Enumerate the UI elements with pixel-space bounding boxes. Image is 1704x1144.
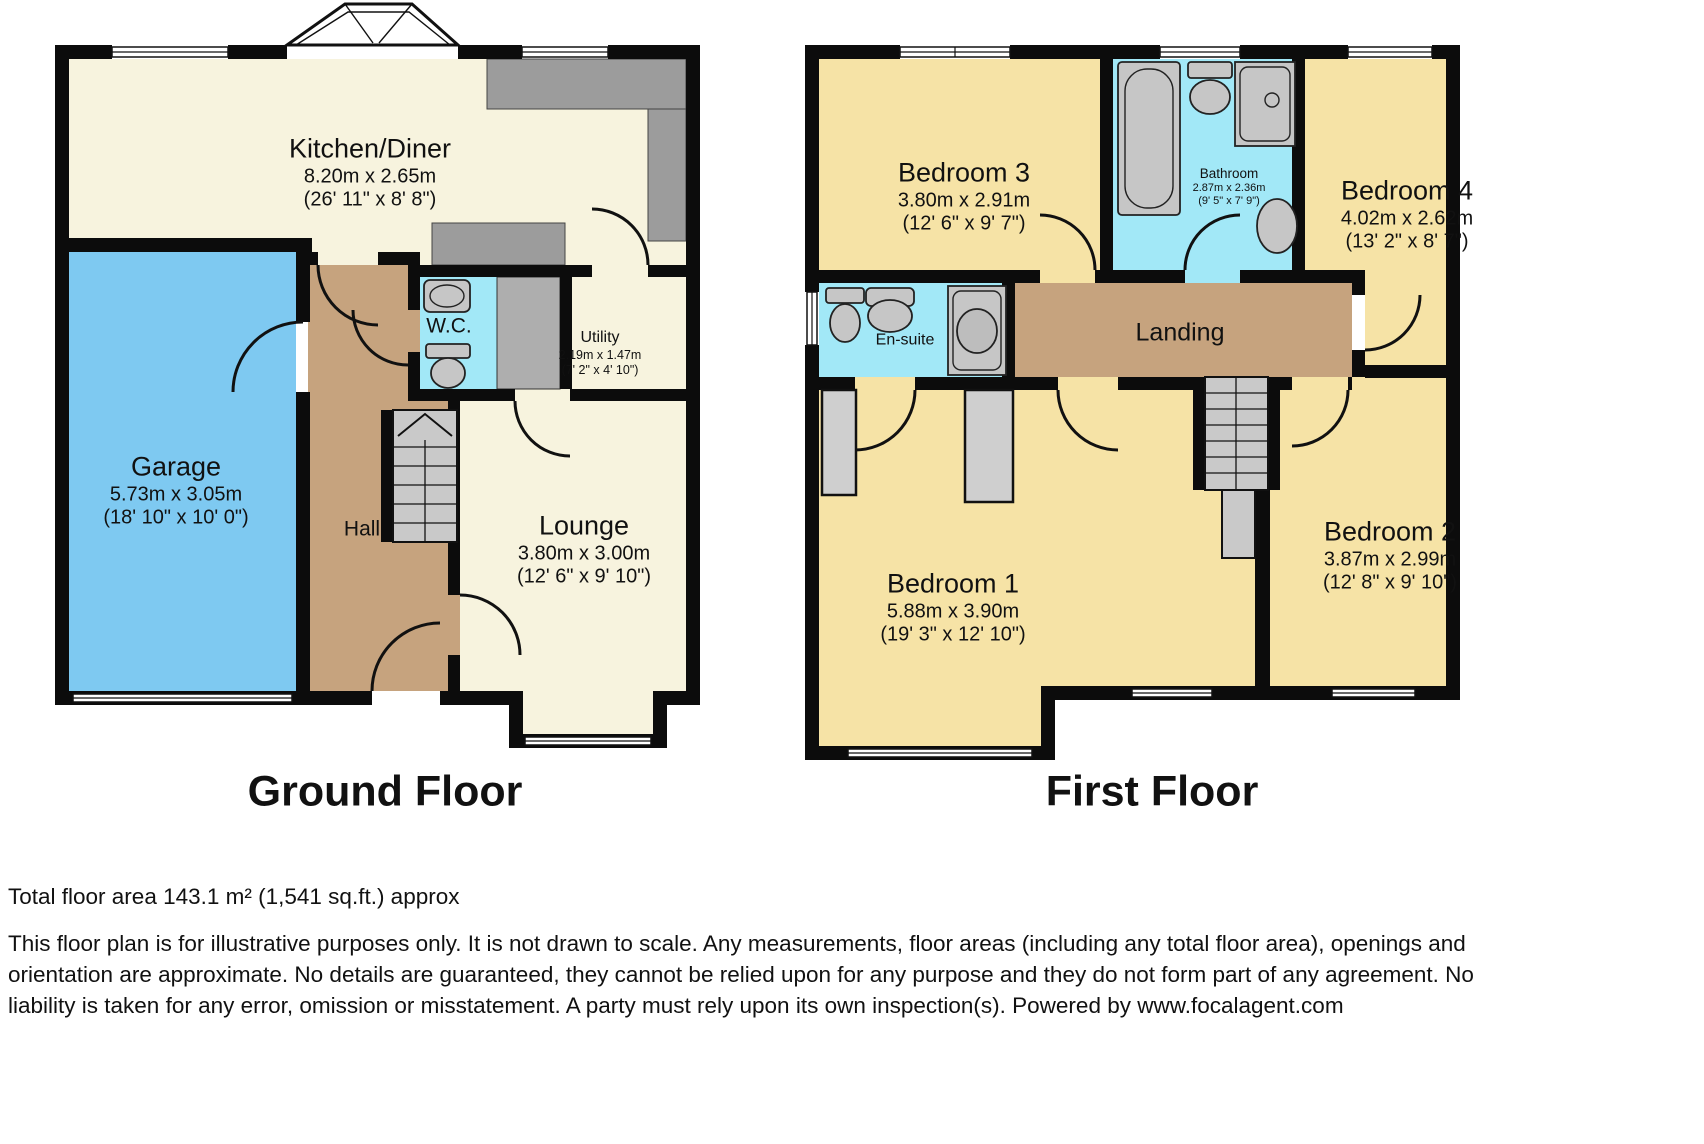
- room-dims-metric: 3.80m x 2.91m: [898, 189, 1030, 213]
- room-dims-imperial: (18' 10" x 10' 0"): [103, 507, 248, 531]
- wc-sink-icon: [424, 280, 470, 312]
- room-dims-metric: 4.02m x 2.62m: [1341, 207, 1473, 231]
- room-dims-imperial: (26' 11" x 8' 8"): [289, 189, 451, 213]
- room-dims-metric: 5.73m x 3.05m: [103, 483, 248, 507]
- kitchen-label: Kitchen/Diner 8.20m x 2.65m (26' 11" x 8…: [289, 133, 451, 212]
- floorplan-page: Kitchen/Diner 8.20m x 2.65m (26' 11" x 8…: [0, 0, 1704, 1144]
- disclaimer-text: This floor plan is for illustrative purp…: [8, 928, 1536, 1021]
- room-dims-imperial: (7' 2" x 4' 10"): [559, 362, 642, 377]
- room-name: Kitchen/Diner: [289, 133, 451, 165]
- room-dims-metric: 3.87m x 2.99m: [1323, 548, 1457, 572]
- total-floor-area: Total floor area 143.1 m² (1,541 sq.ft.)…: [8, 884, 459, 910]
- room-dims-imperial: (12' 6" x 9' 10"): [517, 566, 651, 590]
- bedroom1-label: Bedroom 1 5.88m x 3.90m (19' 3" x 12' 10…: [880, 568, 1025, 647]
- room-name: En-suite: [876, 332, 935, 351]
- hall-label: Hall: [344, 518, 380, 543]
- room-name: Bedroom 2: [1323, 516, 1457, 548]
- room-name: Bedroom 4: [1341, 175, 1473, 207]
- room-dims-metric: 2.19m x 1.47m: [559, 348, 642, 363]
- bedroom1-room-lower: [819, 686, 1041, 746]
- utility-label: Utility 2.19m x 1.47m (7' 2" x 4' 10"): [559, 329, 642, 377]
- room-dims-metric: 8.20m x 2.65m: [289, 165, 451, 189]
- room-name: Bathroom: [1193, 166, 1266, 182]
- room-name: Garage: [103, 451, 248, 483]
- room-dims-metric: 3.80m x 3.00m: [517, 542, 651, 566]
- room-dims-imperial: (13' 2" x 8' 7"): [1341, 231, 1473, 255]
- bedroom4-label: Bedroom 4 4.02m x 2.62m (13' 2" x 8' 7"): [1341, 175, 1473, 254]
- room-name: Bedroom 1: [880, 568, 1025, 600]
- ensuite-sink-icon: [866, 288, 914, 332]
- ground-stairs: [393, 410, 457, 542]
- room-dims-imperial: (12' 6" x 9' 7"): [898, 213, 1030, 237]
- bay-window-top: [287, 4, 458, 45]
- ground-floor-title: Ground Floor: [248, 768, 523, 817]
- bath-icon: [1118, 62, 1180, 215]
- lounge-bay: [523, 691, 653, 736]
- room-dims-imperial: (19' 3" x 12' 10"): [880, 624, 1025, 648]
- first-floor-title: First Floor: [1046, 768, 1259, 817]
- room-name: Hall: [344, 518, 380, 543]
- garage-door: [73, 694, 292, 702]
- room-name: Utility: [559, 329, 642, 348]
- bathroom-shower-icon: [1235, 62, 1295, 146]
- appliance-unit: [497, 277, 560, 389]
- room-dims-metric: 5.88m x 3.90m: [880, 600, 1025, 624]
- bedroom3-label: Bedroom 3 3.80m x 2.91m (12' 6" x 9' 7"): [898, 157, 1030, 236]
- bathroom-label: Bathroom 2.87m x 2.36m (9' 5" x 7' 9"): [1193, 166, 1266, 208]
- room-name: Bedroom 3: [898, 157, 1030, 189]
- room-dims-imperial: (9' 5" x 7' 9"): [1193, 195, 1266, 208]
- first-floor-plan: [805, 45, 1460, 760]
- floorplan-drawing: [0, 0, 1704, 870]
- lounge-label: Lounge 3.80m x 3.00m (12' 6" x 9' 10"): [517, 510, 651, 589]
- room-dims-metric: 2.87m x 2.36m: [1193, 182, 1266, 195]
- garage-label: Garage 5.73m x 3.05m (18' 10" x 10' 0"): [103, 451, 248, 530]
- ensuite-shower-icon: [948, 286, 1006, 375]
- stairs-half-wall: [1222, 490, 1255, 558]
- bedroom2-label: Bedroom 2 3.87m x 2.99m (12' 8" x 9' 10"…: [1323, 516, 1457, 595]
- room-dims-imperial: (12' 8" x 9' 10"): [1323, 572, 1457, 596]
- wc-label: W.C.: [426, 315, 472, 340]
- room-name: W.C.: [426, 315, 472, 340]
- ensuite-toilet-icon: [826, 288, 864, 342]
- room-name: Landing: [1136, 318, 1225, 348]
- ensuite-label: En-suite: [876, 332, 935, 351]
- landing-label: Landing: [1136, 318, 1225, 348]
- room-name: Lounge: [517, 510, 651, 542]
- bathroom-toilet-icon: [1188, 62, 1232, 114]
